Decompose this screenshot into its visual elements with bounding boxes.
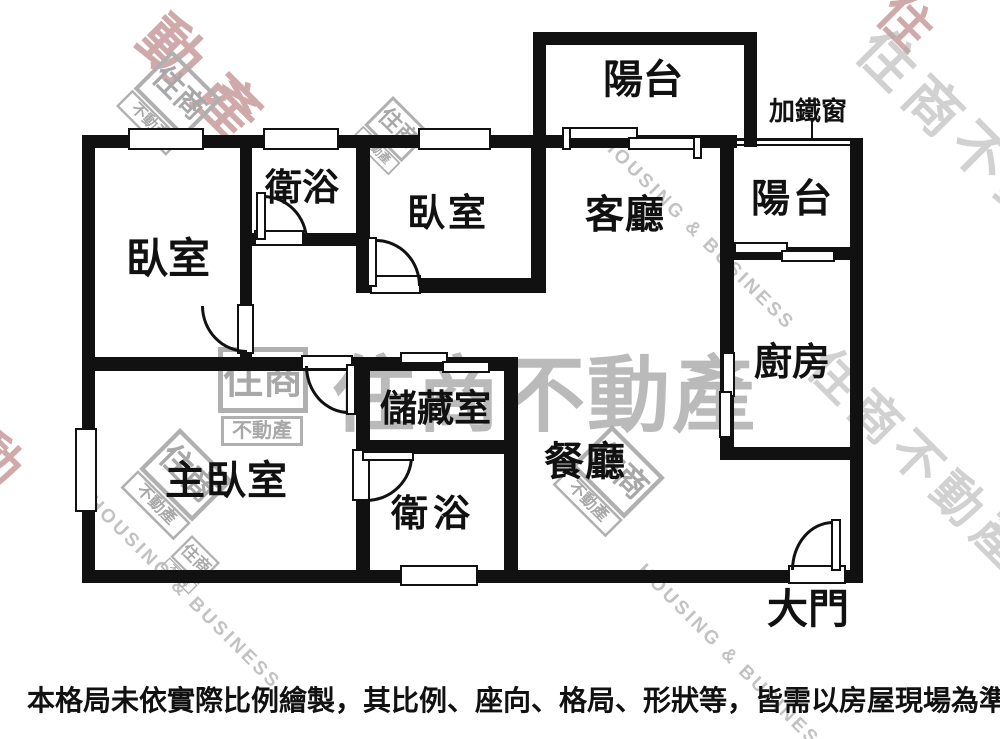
watermark-logo-bottom-left: 住商 不動產: [161, 535, 220, 594]
iron-window-line-2: [737, 144, 863, 146]
wall-balcony-right: [744, 45, 757, 147]
room-label-bedroom-2: 臥室: [407, 195, 489, 235]
watermark-red-fragment-left: 不動: [0, 360, 54, 512]
window-living-balcony-pane2: [628, 137, 700, 150]
wall-balcony-top: [533, 32, 757, 45]
door-leaf-main: [831, 519, 841, 571]
window-master-left: [75, 428, 97, 512]
room-label-balcony-right: 陽台: [751, 180, 835, 221]
door-arc-bedroom2: [376, 239, 421, 286]
iron-window-line-1: [737, 138, 863, 141]
room-label-balcony-top: 陽台: [603, 59, 683, 101]
room-label-storage: 儲藏室: [380, 390, 491, 429]
room-label-living-room: 客廳: [585, 196, 665, 237]
room-label-dining: 餐廳: [544, 441, 626, 483]
watermark-brand-diagonal-right-top: 住商不動產: [841, 8, 1000, 299]
watermark-red-fragment-top-right: 住: [863, 0, 953, 64]
floor-plan: 動產 住 不動 住商不動產 住商不動產 HOUSING & BUSINESS H…: [0, 0, 1000, 739]
wall-bedroom2-right: [531, 147, 546, 293]
window-balcony2-pane2: [781, 250, 835, 262]
wall-balcony-left: [533, 45, 546, 135]
iron-window-note: 加鐵窗: [769, 98, 847, 125]
room-label-kitchen: 廚房: [754, 344, 830, 384]
window-living-balcony-cap-left: [562, 127, 571, 150]
wall-outer-bottom-right: [846, 570, 863, 583]
window-storage-pane1: [400, 352, 448, 364]
room-label-bath-1: 衛浴: [265, 169, 339, 208]
door-leaf-master: [346, 364, 356, 415]
kitchen-sliding-door-pane2: [719, 391, 732, 438]
door-arc-bedroom1: [201, 306, 247, 353]
window-bath1-top: [263, 128, 339, 150]
wall-kitchen-bottom: [720, 447, 863, 460]
wall-outer-right: [850, 140, 863, 583]
wall-storage-right: [504, 357, 518, 576]
window-storage-pane2: [442, 361, 490, 373]
window-bedroom1-top: [128, 128, 204, 150]
window-bedroom2-top: [418, 128, 491, 150]
window-bath2-bottom: [400, 565, 478, 586]
room-label-bedroom-1: 臥室: [126, 237, 210, 281]
door-arc-main: [791, 521, 833, 570]
watermark-housing-business-bottom-left: HOUSING & BUSINESS: [82, 492, 284, 694]
disclaimer-text: 本格局未依實際比例繪製，其比例、座向、格局、形狀等，皆需以房屋現場為準。: [27, 686, 1000, 715]
window-living-balcony-cap-right: [693, 136, 702, 159]
door-leaf-bath2: [362, 451, 414, 461]
door-arc-master: [305, 366, 349, 414]
window-balcony2-pane1: [734, 242, 788, 254]
room-label-master-bedroom: 主臥室: [165, 460, 288, 502]
main-door-label: 大門: [767, 588, 849, 631]
door-leaf-bedroom2: [367, 237, 377, 287]
room-label-bath-2: 衛浴: [391, 495, 475, 534]
